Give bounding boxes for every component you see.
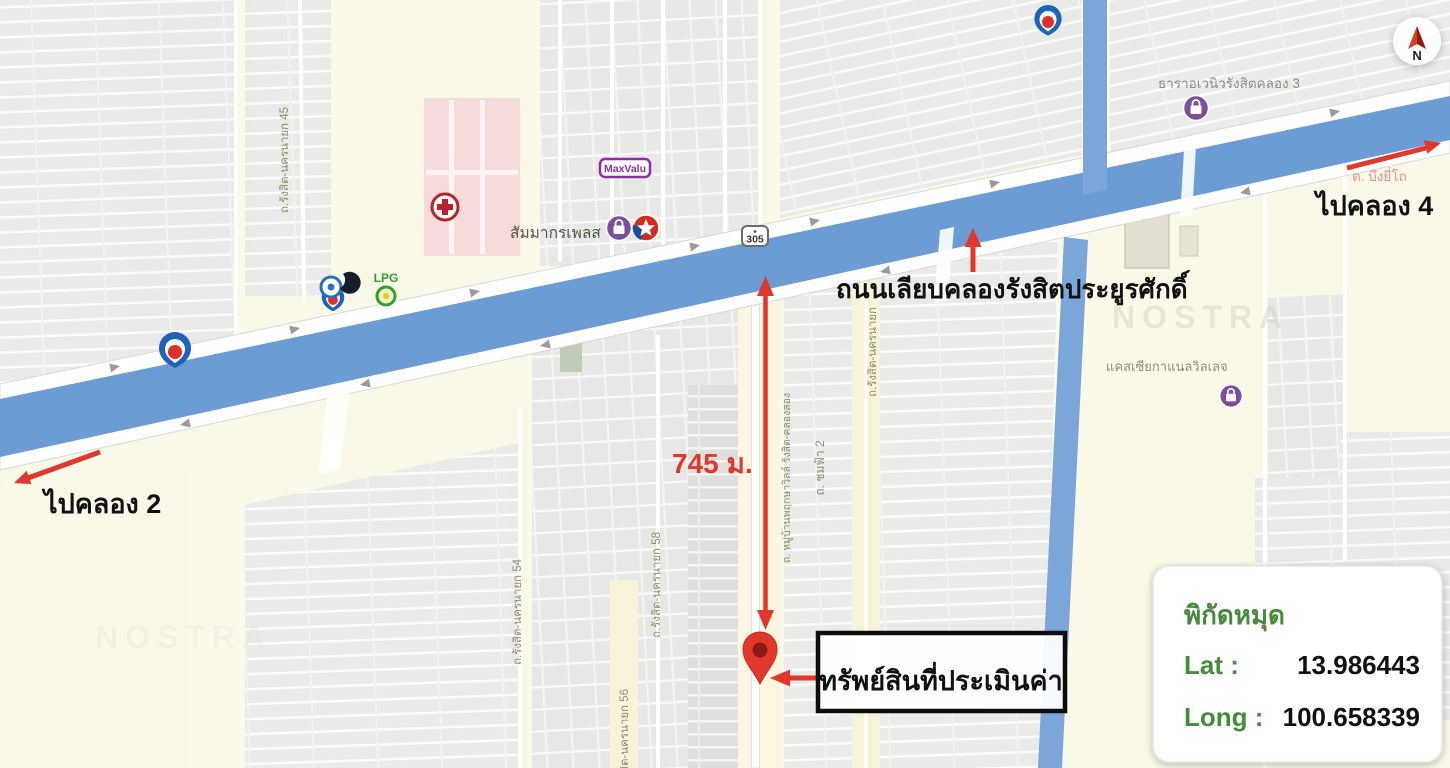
maxvalu-label: MaxValu [604, 163, 646, 175]
route-shield-number: 305 [746, 234, 764, 246]
shopping-bag-icon [1220, 385, 1243, 408]
label-distance: 745 ม. [672, 448, 753, 479]
caltex-star-icon [633, 215, 659, 241]
label-to-khlong2: ไปคลอง 2 [41, 488, 161, 519]
nostra-watermark: NOSTRA [1112, 299, 1289, 335]
maxvalu-badge: MaxValu [600, 159, 650, 177]
nostra-watermark-2: NOSTRA [95, 619, 272, 655]
coords-title: พิกัดหมุด [1184, 600, 1285, 632]
lat-value: 13.986443 [1297, 650, 1420, 680]
label-road-58: ถ.รังสิต-นครนายก 58 [650, 532, 663, 638]
map-screenshot: NOSTRA NOSTRA ธาราอเวนิวรังสิตคลอง 3 ต. … [0, 0, 1450, 768]
lat-label: Lat : [1184, 650, 1239, 680]
long-label: Long : [1184, 702, 1263, 732]
label-sammakorn-place: สัมมากรเพลส [510, 225, 601, 242]
label-canal-road: ถนนเลียบคลองรังสิตประยูรศักดิ์ [836, 269, 1190, 306]
coordinates-panel: พิกัดหมุด Lat : 13.986443 Long : 100.658… [1153, 566, 1442, 762]
label-road-45: ถ.รังสิต-นครนายก 45 [278, 107, 291, 213]
label-road-54: ถ.รังสิต-นครนายก 54 [511, 558, 524, 665]
label-road-56: ถ.รังสิต-นครนายก 56 [618, 689, 631, 768]
compass-n-label: N [1412, 48, 1421, 63]
label-district: ต. บึงยี่โถ [1352, 167, 1407, 184]
compass-icon: N [1393, 17, 1441, 65]
hospital-block [424, 98, 520, 256]
label-thara-avenue: ธาราอเวนิวรังสิตคลอง 3 [1158, 76, 1300, 91]
lpg-label: LPG [374, 271, 399, 285]
shopping-bag-icon [1184, 96, 1209, 121]
label-road-chomfa: ถ. ชมฟ้า 2 [813, 440, 827, 496]
gas-brand-icon [321, 277, 341, 297]
route-shield-305: 305 [742, 226, 768, 246]
map-canvas: NOSTRA NOSTRA ธาราอเวนิวรังสิตคลอง 3 ต. … [0, 0, 1450, 768]
label-road-main: ถ.รังสิต-นครนายก [866, 307, 879, 397]
property-label-text: ทรัพย์สินที่ประเมินค่า [819, 661, 1063, 696]
hospital-icon [432, 194, 458, 220]
label-to-khlong4: ไปคลอง 4 [1313, 190, 1433, 221]
label-road-pruksa: ถ. หมู่บ้านพฤกษาวิลล์ รังสิต-คลองสอง [780, 393, 793, 563]
property-label-box: ทรัพย์สินที่ประเมินค่า [818, 633, 1065, 711]
shopping-bag-icon [607, 216, 632, 241]
label-cassia-village: แคสเซียกาแนลวิลเลจ [1106, 359, 1228, 374]
long-value: 100.658339 [1283, 702, 1420, 732]
